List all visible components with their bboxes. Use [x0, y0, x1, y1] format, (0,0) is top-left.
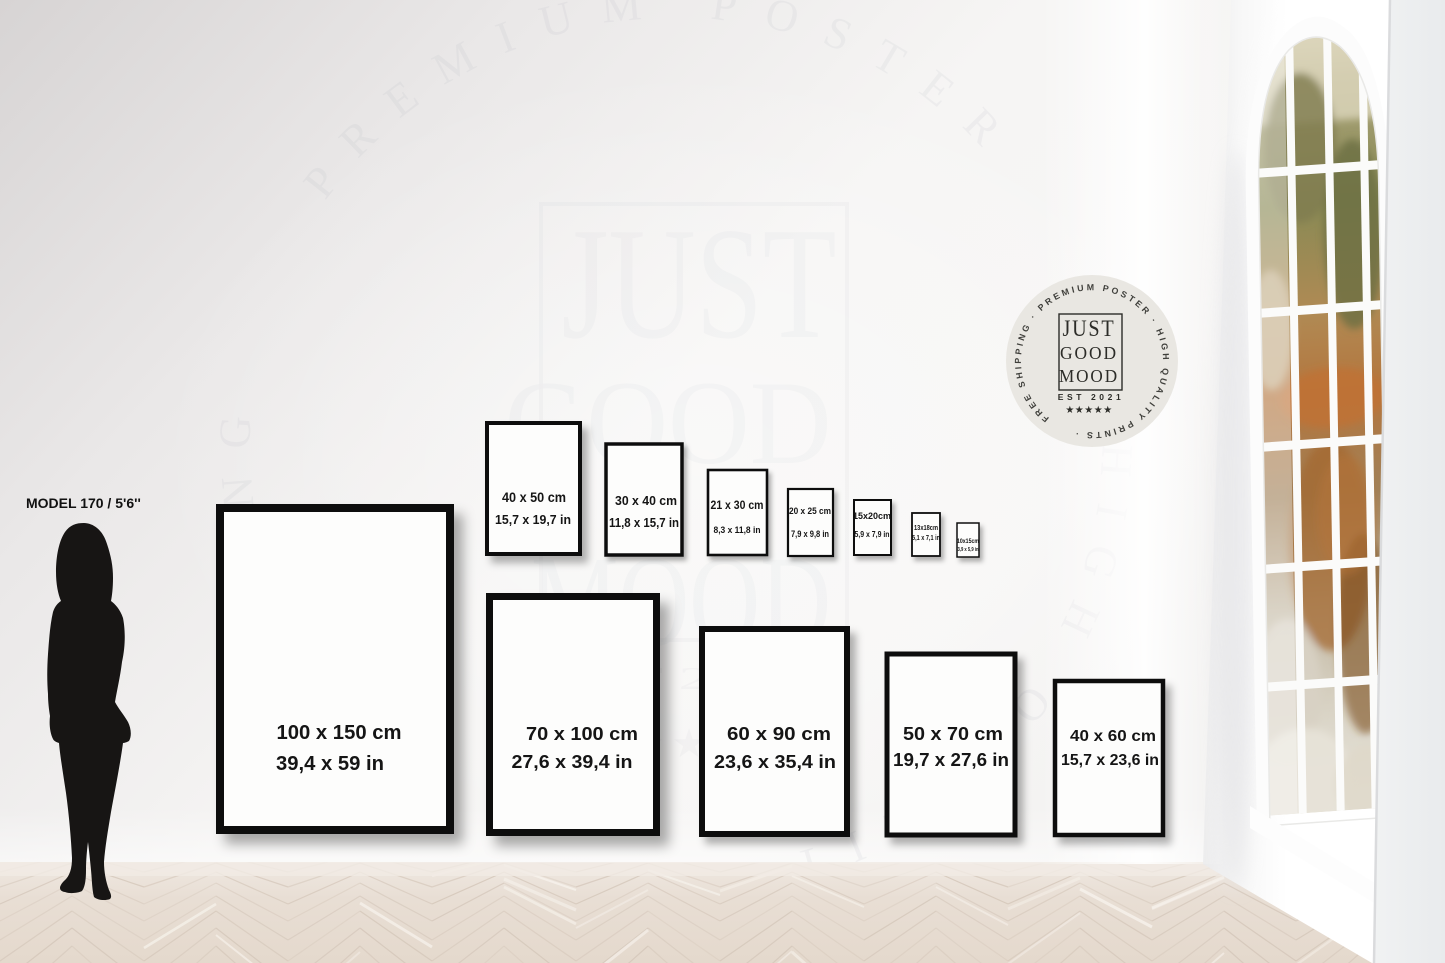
svg-text:GOOD: GOOD [1060, 343, 1118, 363]
svg-text:8,3 x 11,8 in: 8,3 x 11,8 in [714, 525, 761, 536]
svg-text:23,6 x 35,4 in: 23,6 x 35,4 in [714, 751, 836, 772]
svg-text:40 x 50 cm: 40 x 50 cm [502, 490, 566, 505]
svg-text:100 x 150 cm: 100 x 150 cm [277, 722, 402, 744]
svg-text:40 x 60 cm: 40 x 60 cm [1070, 728, 1156, 745]
svg-text:15,7 x 23,6 in: 15,7 x 23,6 in [1061, 752, 1159, 769]
svg-text:JUST: JUST [1063, 316, 1116, 341]
svg-text:15,7 x 19,7 in: 15,7 x 19,7 in [495, 512, 571, 527]
svg-text:50 x 70 cm: 50 x 70 cm [903, 724, 1003, 744]
svg-text:39,4 x 59 in: 39,4 x 59 in [276, 753, 384, 775]
svg-text:19,7 x 27,6 in: 19,7 x 27,6 in [893, 750, 1009, 770]
svg-text:21 x 30 cm: 21 x 30 cm [711, 500, 764, 512]
svg-text:★★★★★: ★★★★★ [1065, 405, 1112, 416]
svg-text:30 x 40 cm: 30 x 40 cm [615, 493, 677, 508]
svg-text:27,6 x 39,4 in: 27,6 x 39,4 in [512, 751, 633, 772]
svg-text:11,8 x 15,7 in: 11,8 x 15,7 in [609, 516, 679, 530]
svg-text:20 x 25 cm: 20 x 25 cm [789, 506, 831, 517]
svg-text:3,9 x 5,9 in: 3,9 x 5,9 in [958, 547, 979, 553]
svg-text:5,1 x 7,1 in: 5,1 x 7,1 in [912, 535, 940, 542]
svg-text:JUST: JUST [562, 194, 837, 372]
svg-text:5,9 x 7,9 in: 5,9 x 7,9 in [855, 529, 890, 539]
svg-text:10x15cm: 10x15cm [957, 538, 979, 545]
svg-text:60 x 90 cm: 60 x 90 cm [727, 723, 831, 744]
svg-text:MODEL 170 / 5'6'': MODEL 170 / 5'6'' [26, 495, 141, 511]
svg-text:7,9 x 9,8 in: 7,9 x 9,8 in [791, 529, 829, 539]
svg-text:70 x 100 cm: 70 x 100 cm [526, 723, 638, 744]
svg-text:EST 2021: EST 2021 [1058, 392, 1125, 402]
svg-text:13x18cm: 13x18cm [914, 523, 938, 532]
svg-text:15x20cm: 15x20cm [853, 511, 891, 522]
svg-text:MOOD: MOOD [1059, 366, 1119, 386]
